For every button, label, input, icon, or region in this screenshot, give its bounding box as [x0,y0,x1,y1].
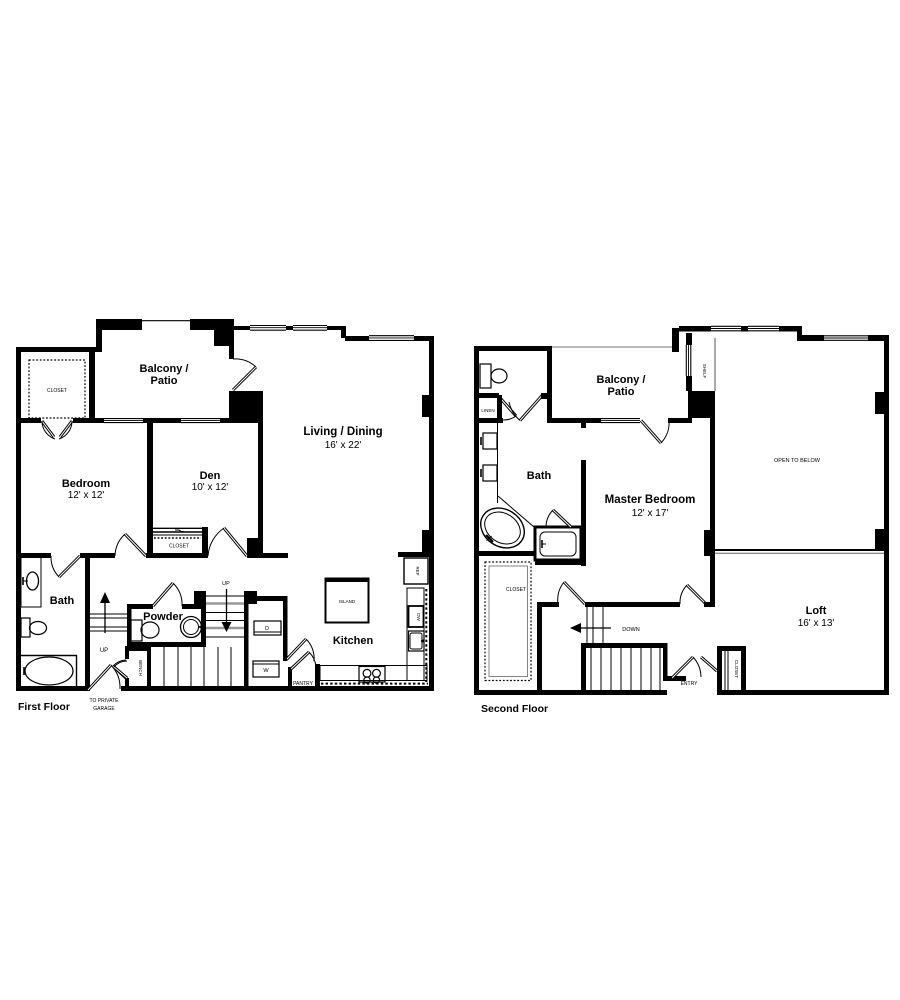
svg-text:CLOSET: CLOSET [506,587,526,593]
svg-text:Master Bedroom: Master Bedroom [605,494,696,506]
svg-text:UP: UP [100,648,108,654]
svg-text:Balcony /: Balcony / [597,374,646,386]
svg-text:OPEN TO BELOW: OPEN TO BELOW [774,458,821,464]
svg-text:ISLAND: ISLAND [339,599,356,604]
svg-text:PANTRY: PANTRY [293,681,313,687]
svg-text:GARAGE: GARAGE [93,706,115,712]
svg-text:Balcony /: Balcony / [140,363,189,375]
svg-text:TO PRIVATE: TO PRIVATE [90,698,120,704]
svg-text:Den: Den [200,470,221,482]
svg-text:BENCH: BENCH [138,660,143,676]
svg-text:12' x 12': 12' x 12' [68,490,105,501]
svg-text:ENTRY: ENTRY [681,681,699,687]
svg-text:CLOSET: CLOSET [734,660,739,678]
svg-text:12' x 17': 12' x 17' [632,508,669,519]
svg-text:Patio: Patio [151,375,178,387]
svg-text:Second Floor: Second Floor [481,703,548,715]
svg-text:Living / Dining: Living / Dining [303,426,382,438]
svg-text:LINEN: LINEN [481,408,494,413]
svg-text:UP: UP [222,581,230,587]
svg-text:Loft: Loft [806,605,827,617]
svg-text:W: W [263,668,269,674]
svg-text:10' x 12': 10' x 12' [192,482,229,493]
svg-text:REF: REF [415,567,420,576]
svg-text:Bath: Bath [50,595,75,607]
svg-text:CLOSET: CLOSET [169,544,189,550]
svg-text:DOWN: DOWN [622,627,639,633]
svg-text:SHELF: SHELF [702,364,707,379]
svg-text:16' x 13': 16' x 13' [798,618,835,629]
svg-text:First Floor: First Floor [18,701,70,713]
svg-text:Kitchen: Kitchen [333,635,374,647]
svg-text:Bath: Bath [527,470,552,482]
svg-text:D: D [265,626,269,632]
svg-text:DW: DW [416,613,421,621]
svg-text:Patio: Patio [608,386,635,398]
svg-text:Bedroom: Bedroom [62,478,111,490]
svg-text:16' x 22': 16' x 22' [325,440,362,451]
svg-text:Powder: Powder [143,611,183,623]
svg-text:CLOSET: CLOSET [47,388,67,394]
